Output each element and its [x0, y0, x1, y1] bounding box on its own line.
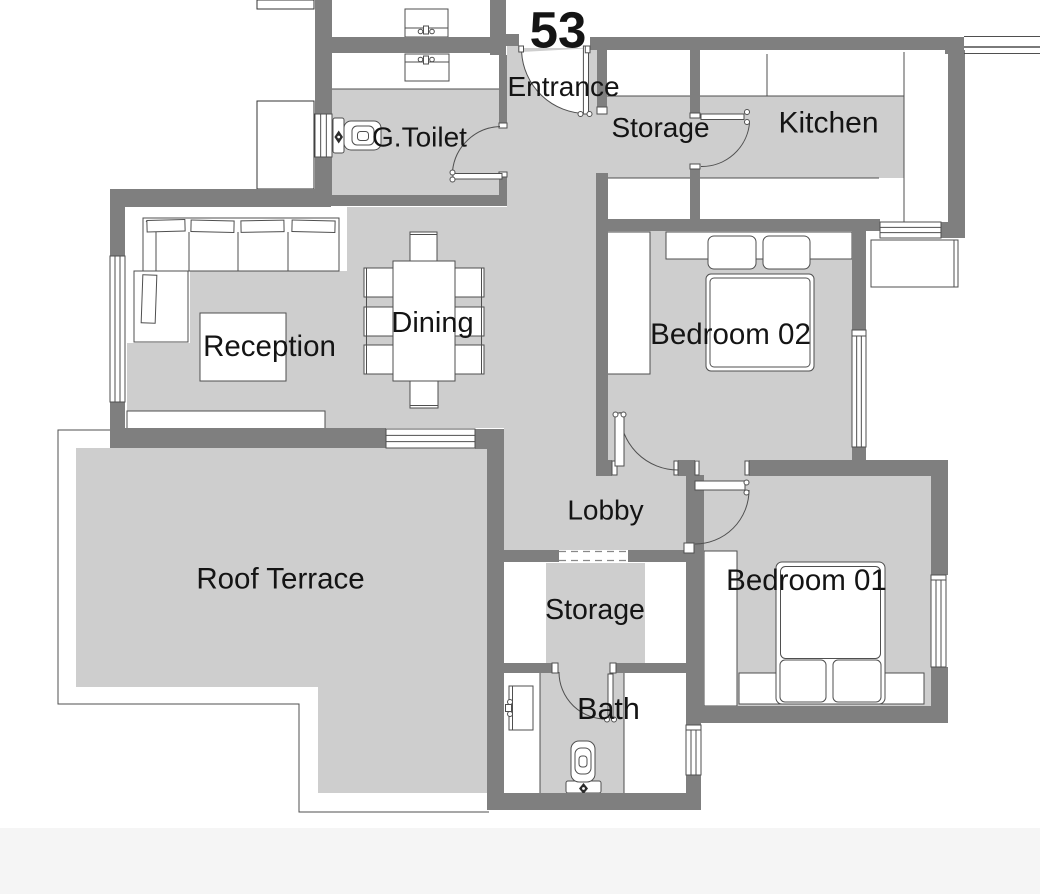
svg-text:53: 53	[530, 2, 587, 59]
svg-text:Entrance: Entrance	[507, 71, 619, 102]
svg-text:Reception: Reception	[203, 330, 336, 363]
svg-text:Storage: Storage	[611, 112, 709, 143]
svg-text:Bath: Bath	[577, 692, 640, 726]
svg-text:G.Toilet: G.Toilet	[372, 122, 467, 153]
svg-text:Storage: Storage	[545, 594, 645, 626]
svg-text:Bedroom 02: Bedroom 02	[650, 318, 811, 351]
svg-text:Dining: Dining	[391, 307, 473, 339]
svg-text:Roof Terrace: Roof Terrace	[196, 563, 364, 596]
svg-text:Lobby: Lobby	[567, 495, 643, 526]
svg-text:Kitchen: Kitchen	[778, 107, 878, 140]
svg-text:Bedroom 01: Bedroom 01	[726, 564, 887, 597]
